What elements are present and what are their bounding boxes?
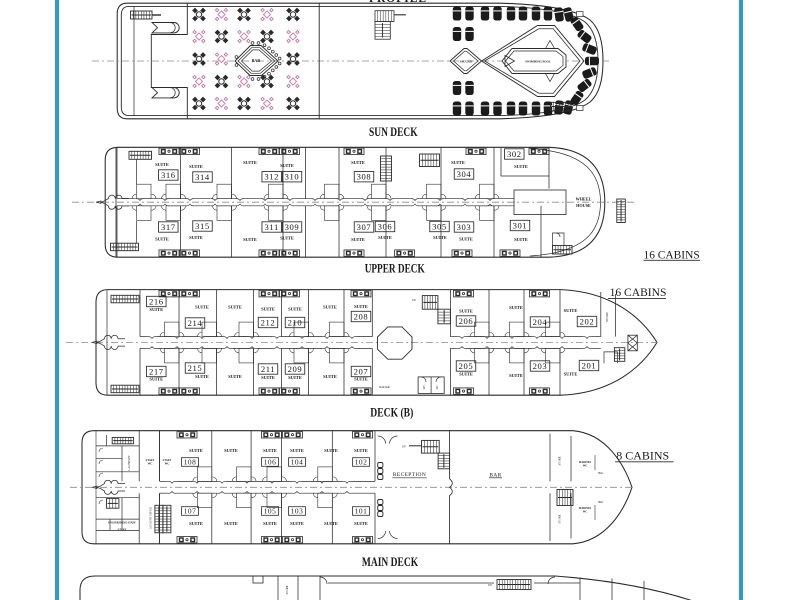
svg-text:SUITE: SUITE [189,235,203,240]
svg-text:SUITE: SUITE [195,374,209,379]
svg-text:SUITE: SUITE [195,305,209,310]
svg-text:SUITE: SUITE [261,375,275,380]
svg-text:203: 203 [533,361,548,371]
svg-text:SUITE: SUITE [514,164,528,169]
svg-text:309: 309 [285,222,300,232]
svg-text:SUITE: SUITE [354,521,368,526]
svg-text:SUITE: SUITE [290,448,304,453]
svg-text:SUITE: SUITE [459,237,473,242]
svg-text:312: 312 [264,172,279,182]
svg-text:SUITE: SUITE [509,305,523,310]
svg-text:SUITE: SUITE [263,448,277,453]
svg-text:SUITE: SUITE [564,308,578,313]
svg-text:DECK (B): DECK (B) [370,405,413,420]
svg-text:310: 310 [285,172,300,182]
svg-text:212: 212 [261,318,276,328]
svg-text:PROFILE: PROFILE [369,0,427,5]
svg-text:DN: DN [543,107,547,110]
svg-text:317: 317 [161,222,176,232]
svg-text:SUITE: SUITE [155,162,169,167]
svg-text:306: 306 [378,222,393,232]
svg-text:16 CABINS: 16 CABINS [644,247,700,261]
svg-text:SUITE: SUITE [459,309,473,314]
svg-text:SUITE: SUITE [324,448,338,453]
svg-text:SUITE: SUITE [290,521,304,526]
svg-text:307: 307 [357,222,372,232]
svg-text:SUITE: SUITE [149,307,163,312]
svg-text:SUITE: SUITE [459,372,473,377]
svg-text:WC: WC [583,511,588,514]
svg-text:STORE: STORE [559,456,562,465]
svg-text:206: 206 [459,316,474,326]
svg-text:16 CABINS: 16 CABINS [610,285,667,299]
svg-text:MAIN DECK: MAIN DECK [362,554,419,569]
svg-text:8 CABINS: 8 CABINS [616,448,669,462]
svg-text:SUN DECK: SUN DECK [369,124,418,139]
svg-text:210: 210 [288,318,303,328]
svg-text:SUITE: SUITE [263,521,277,526]
svg-text:106: 106 [264,458,277,467]
svg-text:SUITE: SUITE [189,448,203,453]
svg-text:WC: WC [583,465,588,468]
svg-text:304: 304 [457,169,472,179]
svg-text:315: 315 [195,221,210,231]
svg-text:SUITE: SUITE [354,448,368,453]
svg-text:WC: WC [165,463,170,466]
svg-text:SUITE: SUITE [243,237,257,242]
svg-text:105: 105 [264,507,277,516]
svg-text:302: 302 [507,149,522,159]
svg-text:103: 103 [291,507,304,516]
svg-text:BAR: BAR [252,58,261,63]
svg-text:HOUSE: HOUSE [576,203,591,208]
svg-text:SUITE: SUITE [354,304,368,309]
svg-text:STORE: STORE [559,514,562,523]
svg-text:WC: WC [436,385,439,390]
svg-text:UP: UP [412,298,416,302]
svg-text:UPPER DECK: UPPER DECK [365,261,426,276]
svg-text:RECEPTION: RECEPTION [393,472,426,478]
svg-text:SUITE: SUITE [224,448,238,453]
svg-text:SUITE: SUITE [228,374,242,379]
svg-text:316: 316 [161,170,176,180]
svg-text:WC: WC [148,463,153,466]
svg-text:SUITE: SUITE [351,237,365,242]
svg-text:SUITE: SUITE [514,237,528,242]
svg-text:216: 216 [149,297,164,307]
svg-text:101: 101 [355,507,368,516]
svg-text:UP: UP [488,583,492,587]
svg-text:102: 102 [355,458,368,467]
svg-text:SUITE: SUITE [280,236,294,241]
svg-text:211: 211 [261,364,275,374]
svg-text:SUITE: SUITE [261,307,275,312]
svg-text:104: 104 [291,458,304,467]
svg-text:SUITE: SUITE [564,372,578,377]
svg-text:SUITE: SUITE [155,237,169,242]
svg-text:SUITE: SUITE [378,235,392,240]
svg-text:W.C.: W.C. [598,501,604,504]
svg-text:SUITE: SUITE [323,305,337,310]
svg-text:WC: WC [423,385,426,390]
svg-text:308: 308 [357,172,372,182]
svg-text:SUITE: SUITE [351,160,365,165]
svg-text:305: 305 [432,222,447,232]
svg-text:207: 207 [354,367,369,377]
svg-text:WHEEL: WHEEL [576,197,592,202]
svg-text:SUITE: SUITE [149,377,163,382]
svg-text:204: 204 [533,317,548,327]
svg-text:STORE: STORE [286,585,289,594]
svg-text:W.C.: W.C. [598,472,604,475]
svg-text:208: 208 [354,312,369,322]
svg-text:STORE: STORE [605,312,609,322]
svg-text:SUITE: SUITE [280,163,294,168]
svg-text:303: 303 [457,222,472,232]
svg-text:JACUZZI: JACUZZI [460,59,474,63]
svg-text:SUITE: SUITE [224,521,238,526]
svg-text:ACCOUNT OFFICE: ACCOUNT OFFICE [150,507,153,529]
svg-text:SUITE: SUITE [324,521,338,526]
svg-text:311: 311 [265,222,279,232]
svg-text:SWIMMING POOL: SWIMMING POOL [525,59,551,63]
svg-text:209: 209 [288,364,303,374]
svg-text:STAFF: STAFF [118,529,127,532]
svg-text:SUITE: SUITE [189,164,203,169]
svg-text:314: 314 [195,172,210,182]
svg-text:108: 108 [184,458,197,467]
svg-text:107: 107 [184,507,197,516]
svg-text:SUITE: SUITE [433,235,447,240]
svg-text:SUITE: SUITE [509,373,523,378]
svg-text:SUITE: SUITE [451,160,465,165]
svg-text:LAUNDRY: LAUNDRY [127,455,131,471]
svg-text:SUITE: SUITE [323,374,337,379]
svg-text:ENGINEERING STAFF: ENGINEERING STAFF [108,522,136,525]
svg-text:215: 215 [188,363,203,373]
svg-text:SUITE: SUITE [228,305,242,310]
svg-text:301: 301 [513,221,528,231]
svg-text:SUITE: SUITE [243,160,257,165]
svg-text:SUITE: SUITE [354,377,368,382]
svg-text:SUITE: SUITE [288,375,302,380]
svg-text:202: 202 [580,317,595,327]
svg-text:SUITE: SUITE [189,521,203,526]
svg-text:201: 201 [582,361,597,371]
svg-text:RADAR: RADAR [379,385,390,389]
svg-text:SUITE: SUITE [288,307,302,312]
svg-text:214: 214 [188,318,203,328]
svg-text:205: 205 [459,361,474,371]
svg-text:UP: UP [402,445,406,449]
svg-text:217: 217 [149,367,164,377]
